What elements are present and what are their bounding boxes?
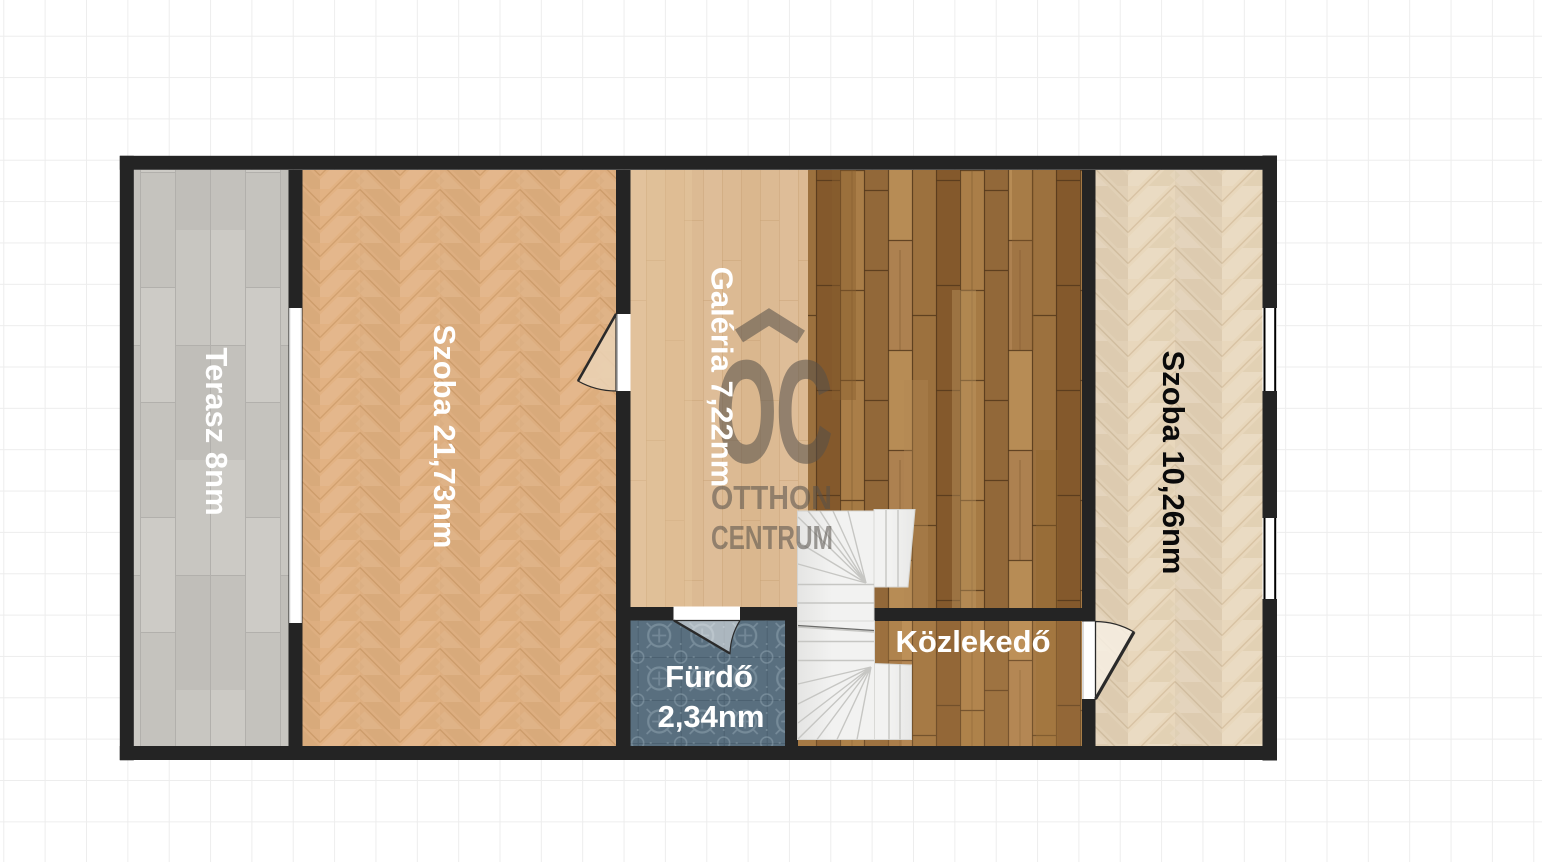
svg-text:CENTRUM: CENTRUM: [711, 519, 833, 556]
svg-text:Galéria 7,22nm: Galéria 7,22nm: [704, 267, 739, 488]
svg-text:Fürdő: Fürdő: [665, 659, 753, 694]
svg-text:2,34nm: 2,34nm: [658, 699, 765, 734]
svg-text:Terasz 8nm: Terasz 8nm: [199, 347, 234, 515]
svg-text:Közlekedő: Közlekedő: [895, 624, 1050, 659]
svg-text:Szoba 21,73nm: Szoba 21,73nm: [427, 325, 462, 549]
svg-text:Szoba 10,26nm: Szoba 10,26nm: [1156, 351, 1191, 575]
